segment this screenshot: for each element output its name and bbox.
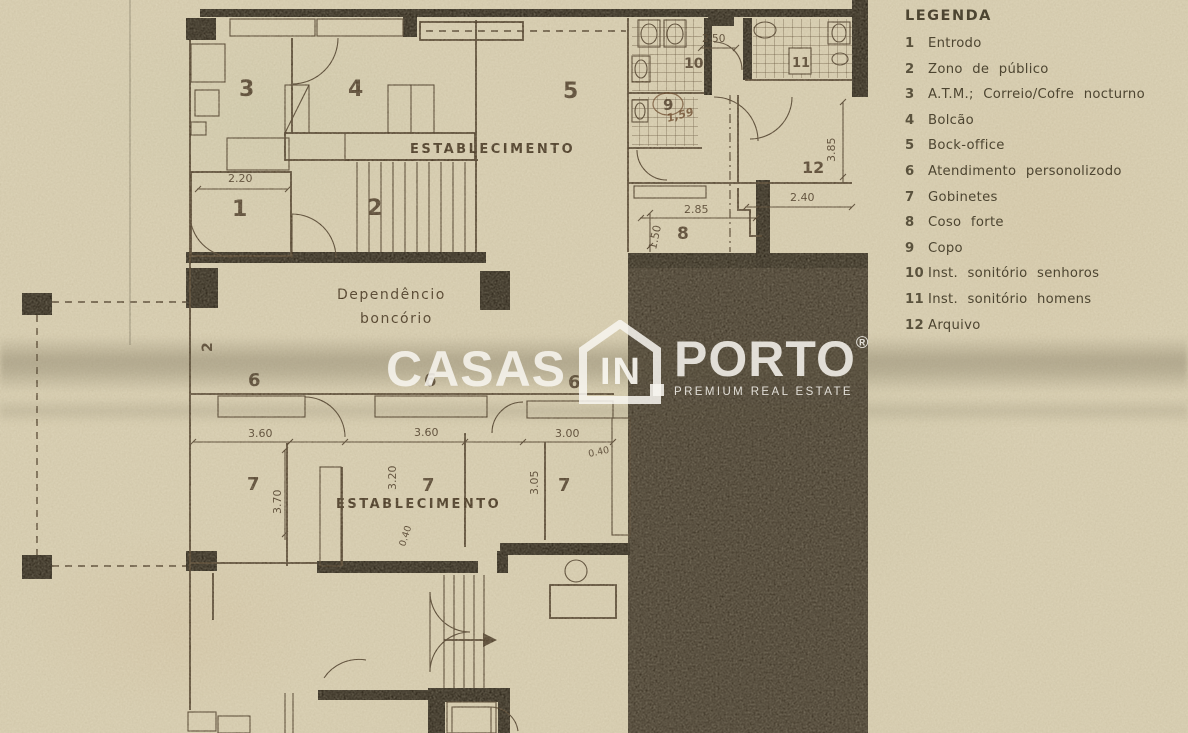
sanitary-block [628, 18, 852, 252]
chair [565, 560, 587, 582]
room-label-2: 2 [367, 196, 382, 221]
dim-3-60-b: 3.60 [414, 426, 439, 439]
legend-item-7: 7Gobinetes [905, 190, 1183, 216]
dim-0-40-a: 0.40 [587, 445, 610, 460]
legend-item-10: 10Inst. sonitório senhoros [905, 266, 1183, 292]
legend-item-label: Gobinetes [928, 190, 1183, 205]
room-label-4: 4 [348, 77, 363, 102]
dim-2-85: 2.85 [684, 203, 709, 216]
legend-item-label: Inst. sonitório senhoros [928, 266, 1183, 281]
legend-item-number: 9 [905, 241, 928, 256]
legend-item-label: A.T.M.; Correio/Cofre nocturno [928, 87, 1183, 102]
room-label-12: 12 [802, 158, 824, 177]
entrance-ramp-hatch [190, 138, 336, 258]
text-establecimento-2: ESTABLECIMENTO [336, 497, 501, 512]
legend-item-12: 12Arquivo [905, 318, 1183, 344]
legend-item-8: 8Coso forte [905, 215, 1183, 241]
legend-item-3: 3A.T.M.; Correio/Cofre nocturno [905, 87, 1183, 113]
dim-3-60-a: 3.60 [248, 427, 273, 440]
room-label-8: 8 [677, 224, 689, 244]
legend-item-5: 5Bock-office [905, 138, 1183, 164]
desk [550, 585, 616, 618]
legend-panel: LEGENDA 1Entrodo2Zono de público3A.T.M.;… [905, 8, 1183, 343]
main-stairs [345, 20, 478, 252]
legend-item-label: Zono de público [928, 62, 1183, 77]
dim-3-70: 3.70 [271, 490, 284, 515]
legend-item-number: 5 [905, 138, 928, 153]
legend-item-number: 10 [905, 266, 928, 281]
legend-item-label: Copo [928, 241, 1183, 256]
legend-item-number: 7 [905, 190, 928, 205]
text-dependencia-line1: Dependêncio [337, 287, 446, 303]
legend-item-label: Atendimento personolizodo [928, 164, 1183, 179]
bottom-zone [188, 560, 616, 733]
dim-2-50: 2.50 [702, 33, 725, 45]
legend-items: 1Entrodo2Zono de público3A.T.M.; Correio… [905, 36, 1183, 343]
legend-item-1: 1Entrodo [905, 36, 1183, 62]
room-label-7-1: 7 [247, 474, 260, 495]
legend-item-label: Bock-office [928, 138, 1183, 153]
legend-item-number: 12 [905, 318, 928, 333]
legend-item-4: 4Bolcão [905, 113, 1183, 139]
text-dependencia-line2: boncório [360, 311, 433, 327]
legend-item-9: 9Copo [905, 241, 1183, 267]
legend-item-number: 8 [905, 215, 928, 230]
dim-3-05: 3.05 [528, 471, 541, 496]
legend-item-label: Bolcão [928, 113, 1183, 128]
dim-1-50: 1.50 [646, 224, 664, 251]
legend-item-number: 3 [905, 87, 928, 102]
legend-item-number: 2 [905, 62, 928, 77]
legend-item-number: 1 [905, 36, 928, 51]
stair-direction-arrow [483, 633, 497, 647]
room-label-5: 5 [563, 79, 578, 104]
room-label-6-2: 6 [424, 370, 437, 391]
room-label-1: 1 [232, 197, 247, 222]
room-label-6-3: 6 [568, 372, 581, 393]
dim-0-40-b: 0.40 [397, 524, 414, 548]
room-label-3: 3 [239, 77, 254, 102]
room-label-11: 11 [792, 56, 810, 71]
text-establecimento-1: ESTABLECIMENTO [410, 142, 575, 157]
legend-item-number: 4 [905, 113, 928, 128]
dark-solid-mass [628, 253, 868, 733]
legend-item-label: Arquivo [928, 318, 1183, 333]
legend-item-6: 6Atendimento personolizodo [905, 164, 1183, 190]
dim-3-85: 3.85 [825, 138, 838, 163]
dim-2-40: 2.40 [790, 191, 815, 204]
dim-2-20: 2.20 [228, 172, 253, 185]
dim-3-00: 3.00 [555, 427, 580, 440]
legend-item-label: Entrodo [928, 36, 1183, 51]
exterior-column-grid [22, 293, 186, 579]
room-label-7-3: 7 [558, 475, 571, 496]
room-label-7-2: 7 [422, 475, 435, 496]
legend-item-number: 6 [905, 164, 928, 179]
legend-item-number: 11 [905, 292, 928, 307]
window-hatch-band [230, 19, 626, 40]
dim-3-20: 3.20 [386, 466, 399, 491]
scanned-floorplan-page: 34512210119128666777ESTABLECIMENTOESTABL… [0, 0, 1188, 733]
legend-item-label: Coso forte [928, 215, 1183, 230]
legend-title: LEGENDA [905, 8, 1183, 24]
room-label-6-1: 6 [248, 370, 261, 391]
legend-item-2: 2Zono de público [905, 62, 1183, 88]
room-label-2-side: 2 [200, 342, 216, 352]
legend-item-label: Inst. sonitório homens [928, 292, 1183, 307]
room-label-10: 10 [684, 56, 704, 72]
legend-item-11: 11Inst. sonitório homens [905, 292, 1183, 318]
